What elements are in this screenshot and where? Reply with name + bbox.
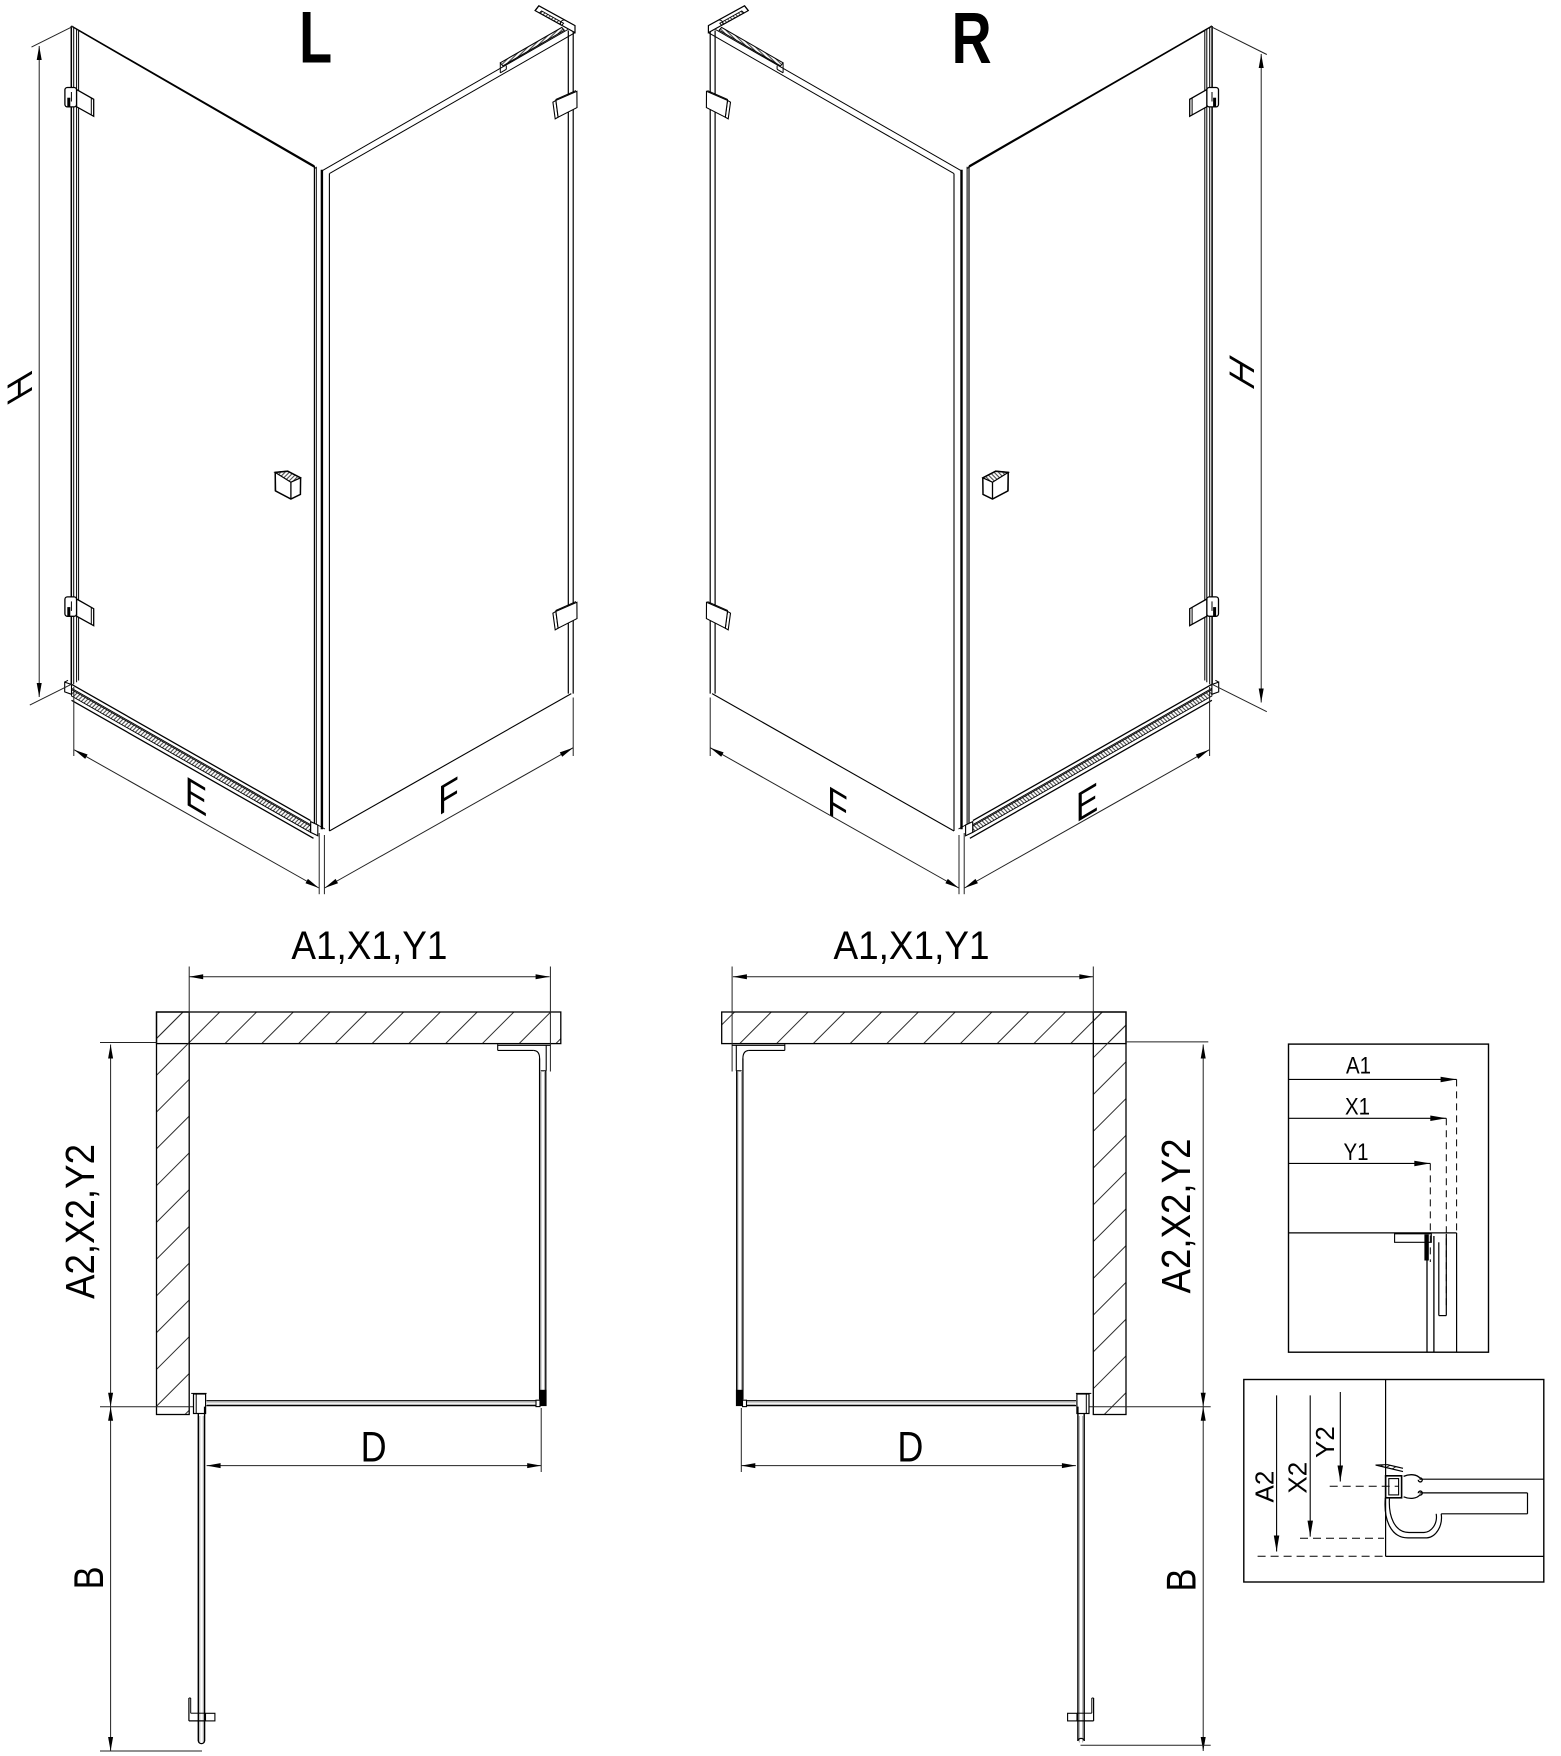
svg-text:A2,X2,Y2: A2,X2,Y2: [1153, 1139, 1199, 1294]
svg-text:B: B: [1158, 1569, 1205, 1592]
svg-text:A1,X1,Y1: A1,X1,Y1: [291, 924, 447, 968]
svg-text:X1: X1: [1345, 1093, 1370, 1120]
svg-text:Y2: Y2: [1310, 1426, 1340, 1458]
svg-text:D: D: [361, 1424, 387, 1472]
svg-text:X2: X2: [1282, 1462, 1312, 1494]
svg-text:A1,X1,Y1: A1,X1,Y1: [834, 924, 990, 968]
svg-text:R: R: [952, 0, 992, 79]
svg-text:B: B: [65, 1566, 112, 1589]
svg-text:A2,X2,Y2: A2,X2,Y2: [57, 1144, 103, 1299]
svg-text:Y1: Y1: [1344, 1139, 1369, 1166]
svg-text:A2: A2: [1250, 1471, 1280, 1503]
svg-text:D: D: [897, 1424, 923, 1472]
svg-text:A1: A1: [1346, 1052, 1371, 1079]
svg-text:L: L: [299, 0, 332, 78]
